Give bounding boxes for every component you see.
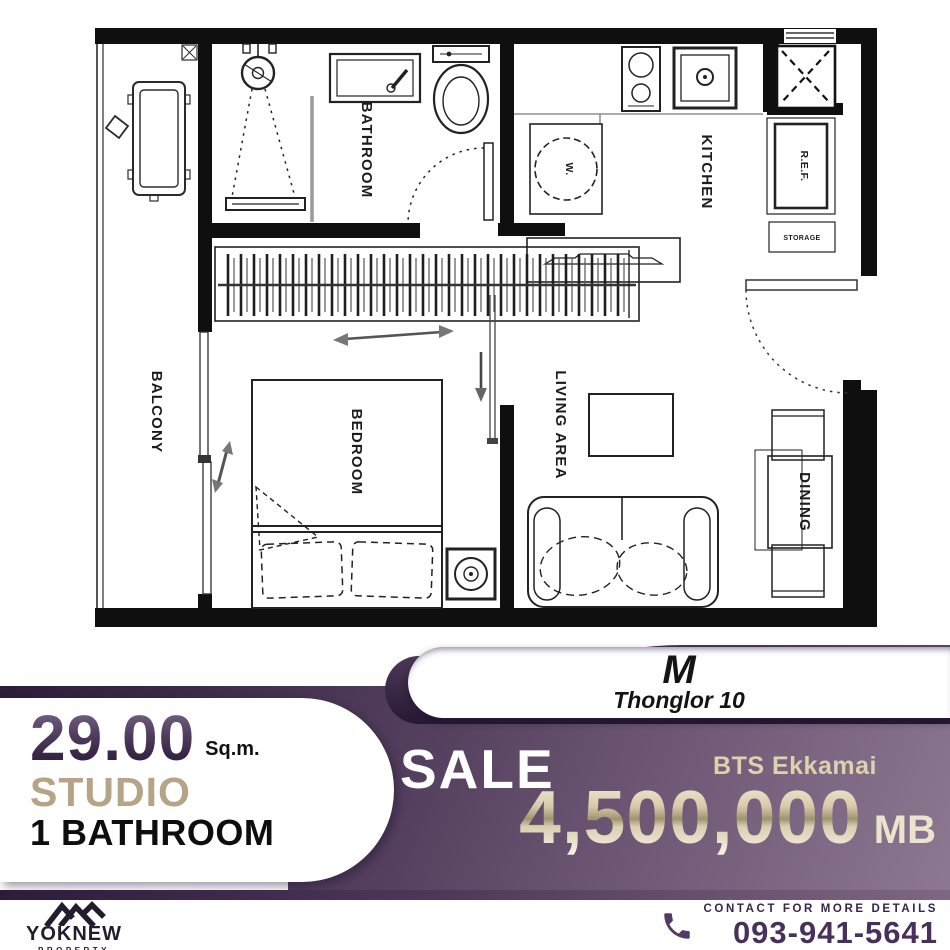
brand-tagline: PROPERTY — [38, 946, 110, 950]
bedroom — [252, 380, 495, 608]
bathroom-count: 1 BATHROOM — [30, 814, 394, 852]
shower-head-icon — [242, 57, 274, 89]
bathroom-door — [408, 143, 493, 222]
footer-divider — [0, 890, 950, 900]
bed-icon — [252, 380, 442, 608]
bedside-table-icon — [447, 549, 495, 599]
dining-chair-bottom — [772, 545, 824, 597]
price-row: 4,500,000 MB — [519, 780, 936, 855]
ac-condenser-unit — [128, 82, 190, 201]
brand-name: YOKNEW — [26, 924, 122, 944]
label-bathroom: BATHROOM — [358, 102, 375, 199]
balcony-door-arrow — [212, 441, 233, 493]
contact-block: CONTACT FOR MORE DETAILS 093-941-5641 — [660, 903, 938, 949]
vanity-sink — [330, 54, 420, 102]
label-storage: STORAGE — [783, 235, 820, 242]
plan-walls — [95, 28, 877, 627]
kitchen-sink-icon — [674, 48, 736, 108]
unit-model: M — [662, 652, 695, 688]
project-name: Thonglor 10 — [613, 688, 745, 713]
stove-icon — [622, 47, 660, 111]
price-value: 4,500,000 — [519, 780, 862, 855]
label-bedroom: BEDROOM — [348, 409, 365, 496]
label-dining: DINING — [796, 472, 813, 532]
toilet-icon — [433, 46, 489, 133]
floor-plan: BALCONY BATHROOM KITCHEN BEDROOM LIVING … — [0, 0, 950, 690]
dining-chair-top — [772, 410, 824, 460]
bedroom-partition — [475, 295, 498, 444]
balcony-sliding-door — [198, 332, 211, 594]
bathroom — [330, 46, 493, 222]
entry-door — [746, 280, 861, 393]
label-balcony: BALCONY — [148, 371, 165, 454]
sofa-icon — [528, 497, 718, 607]
vent-slot — [784, 29, 836, 43]
dining — [755, 410, 832, 597]
label-living-area: LIVING AREA — [552, 370, 569, 479]
specs-panel: 29.00 Sq.m. STUDIO 1 BATHROOM — [0, 698, 394, 882]
area-unit: Sq.m. — [205, 738, 259, 770]
phone-icon — [660, 909, 694, 943]
wardrobe-arrow — [333, 325, 454, 346]
kitchen-counter — [527, 238, 680, 282]
phone-number: 093-941-5641 — [733, 917, 938, 950]
price-unit: MB — [874, 810, 936, 855]
property-flyer: BALCONY BATHROOM KITCHEN BEDROOM LIVING … — [0, 0, 950, 950]
balcony — [97, 44, 233, 608]
brand-logo: YOKNEW PROPERTY — [26, 901, 122, 950]
label-kitchen: KITCHEN — [698, 134, 715, 209]
coffee-table-icon — [589, 394, 673, 456]
label-washer: W. — [563, 162, 575, 175]
layout-type: STUDIO — [30, 771, 394, 814]
area-value: 29.00 — [30, 706, 195, 770]
unit-card: M Thonglor 10 — [408, 647, 950, 718]
shaft — [777, 46, 835, 108]
label-refrigerator: R.E.F. — [798, 151, 810, 182]
shower-room — [226, 44, 312, 222]
valve-symbol — [106, 116, 128, 138]
